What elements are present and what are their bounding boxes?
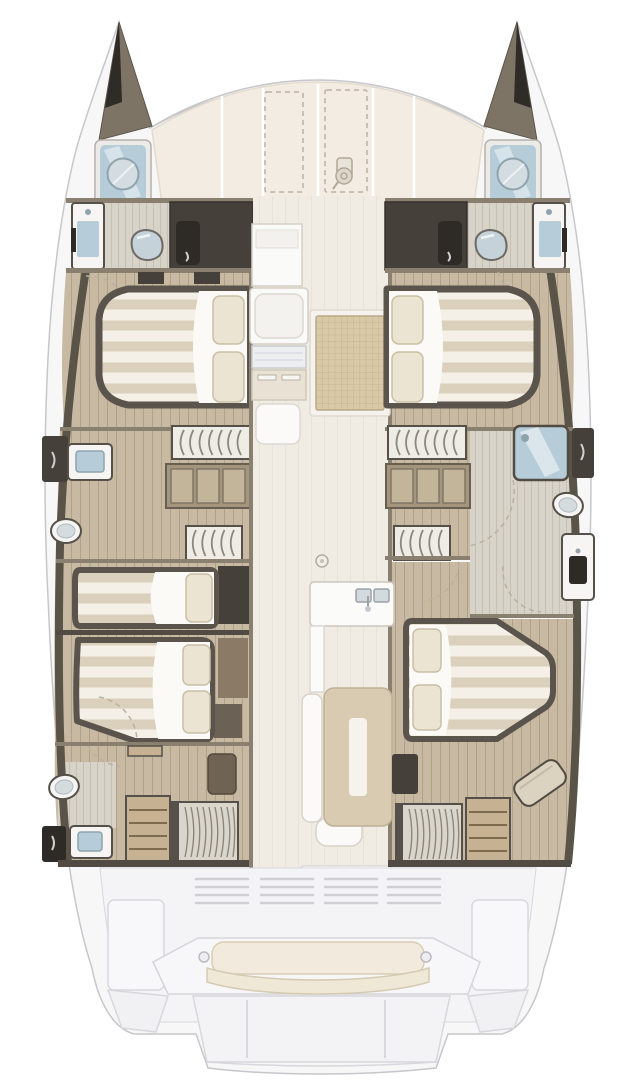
bulkhead — [56, 559, 253, 563]
faucet-base — [576, 549, 581, 554]
aft-stairs — [466, 798, 510, 864]
shower-head-icon — [546, 209, 552, 215]
bedside-locker — [194, 272, 220, 284]
sink — [132, 230, 163, 260]
stairs — [394, 526, 450, 560]
pillow — [213, 296, 244, 344]
sink — [476, 230, 507, 260]
lockers — [166, 464, 250, 508]
sink-basin — [569, 556, 587, 584]
bedside-locker — [218, 566, 250, 624]
aft-cockpit — [100, 868, 536, 1066]
shower-door-handle — [71, 228, 76, 252]
pillow — [392, 296, 423, 344]
side-locker — [108, 900, 164, 990]
pillow — [413, 629, 441, 672]
toilet — [51, 519, 81, 543]
floor-plan-drawing — [0, 0, 635, 1080]
chart-module-top — [256, 230, 298, 248]
port-bow — [95, 22, 152, 206]
starboard-bow — [484, 22, 541, 206]
pillow — [392, 352, 423, 402]
bench-post — [199, 952, 209, 962]
pillow — [183, 691, 210, 733]
transom-bulkhead — [58, 860, 253, 867]
dinette — [302, 688, 392, 846]
stove — [252, 346, 306, 368]
shower-door-handle — [562, 228, 567, 252]
aft-stairs — [126, 796, 170, 862]
bedside-locker — [138, 272, 164, 284]
faucet-base — [365, 606, 371, 612]
grid-floor-hatch — [316, 316, 384, 410]
bedside-locker — [392, 754, 418, 794]
hanging-wardrobe — [172, 802, 238, 862]
drawer-handle — [282, 375, 300, 380]
bedside-shelf — [218, 638, 248, 698]
floor-ring-pull — [320, 559, 324, 563]
shower-glass — [539, 221, 561, 257]
side-locker — [472, 900, 528, 990]
transom-bulkhead — [388, 860, 571, 867]
drawer-handle — [258, 375, 276, 380]
pillow — [183, 645, 210, 685]
port-forward-cabin — [86, 272, 249, 405]
pillow — [413, 685, 441, 730]
catamaran-floor-plan — [0, 0, 635, 1080]
shower-head-icon — [85, 209, 91, 215]
pillow — [213, 352, 244, 402]
bench — [302, 694, 322, 822]
stairs — [172, 426, 250, 459]
bulkhead — [385, 556, 470, 560]
swim-platform — [193, 996, 450, 1062]
bulkhead — [385, 268, 570, 273]
transom-bench-cushion — [212, 942, 424, 974]
bench-post — [421, 952, 431, 962]
stairs — [186, 526, 242, 560]
lockers — [386, 464, 470, 508]
counter-return — [310, 626, 324, 692]
seat-cushion — [255, 294, 303, 338]
shower-head-icon — [521, 434, 529, 442]
stairs — [388, 426, 466, 459]
hanging-wardrobe — [396, 804, 462, 864]
saloon — [249, 196, 394, 900]
bulkhead — [470, 614, 574, 618]
stool — [256, 404, 300, 444]
sink-basin — [78, 832, 102, 851]
bedside-locker — [214, 704, 242, 738]
step-box — [128, 746, 162, 756]
sink-basin — [76, 451, 104, 472]
cabin-divider — [56, 630, 253, 635]
galley-module — [252, 346, 306, 444]
pillow — [186, 574, 212, 622]
shower-glass — [77, 221, 99, 257]
table-leaf — [349, 718, 367, 796]
port-aft-cabins — [56, 559, 253, 741]
sink-basin — [374, 589, 389, 602]
shelf — [208, 754, 236, 794]
